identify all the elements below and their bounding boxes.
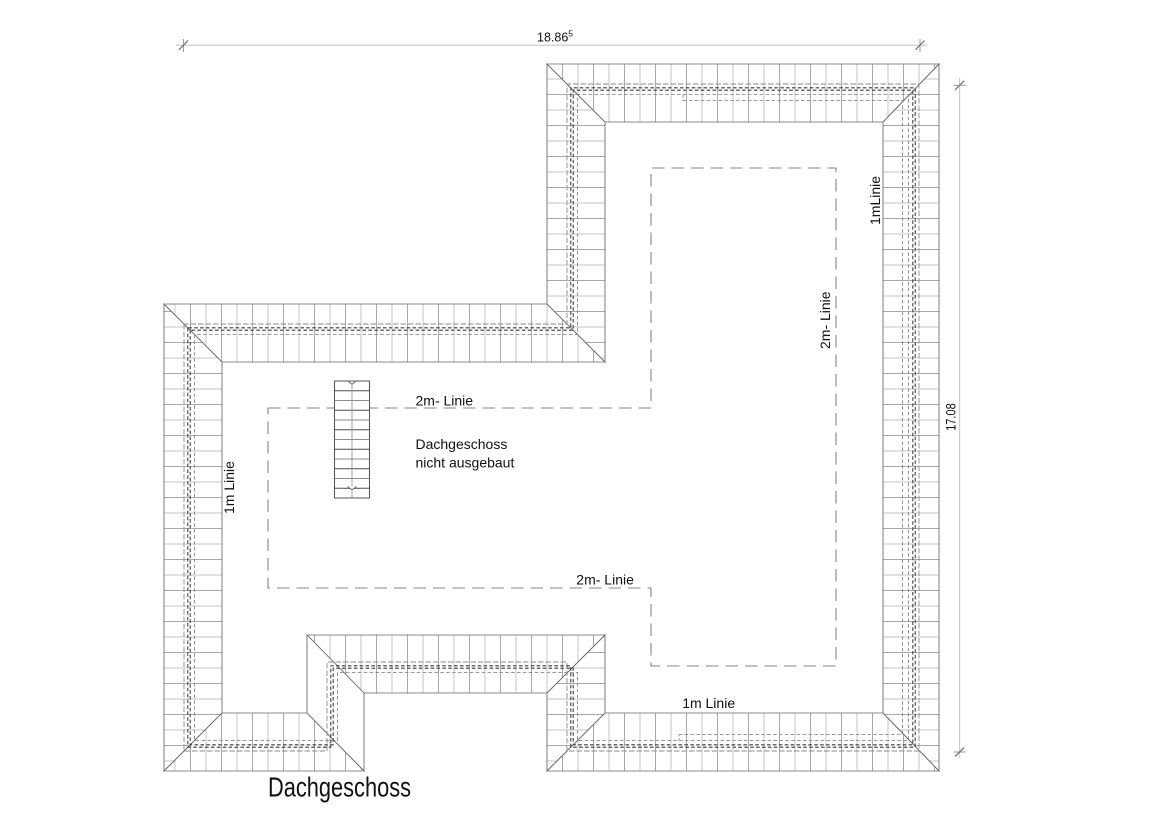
svg-text:2m- Linie: 2m- Linie <box>576 572 634 588</box>
svg-text:1m Linie: 1m Linie <box>682 695 735 711</box>
svg-text:2m- Linie: 2m- Linie <box>817 291 833 349</box>
svg-text:1mLinie: 1mLinie <box>867 176 883 225</box>
svg-text:18.865: 18.865 <box>537 29 573 45</box>
svg-text:Dachgeschoss: Dachgeschoss <box>416 436 508 452</box>
svg-text:Dachgeschoss: Dachgeschoss <box>268 772 411 803</box>
svg-text:17.08: 17.08 <box>942 403 958 431</box>
svg-text:1m Linie: 1m Linie <box>221 461 237 514</box>
svg-text:nicht ausgebaut: nicht ausgebaut <box>416 455 515 471</box>
svg-text:2m- Linie: 2m- Linie <box>416 393 474 409</box>
